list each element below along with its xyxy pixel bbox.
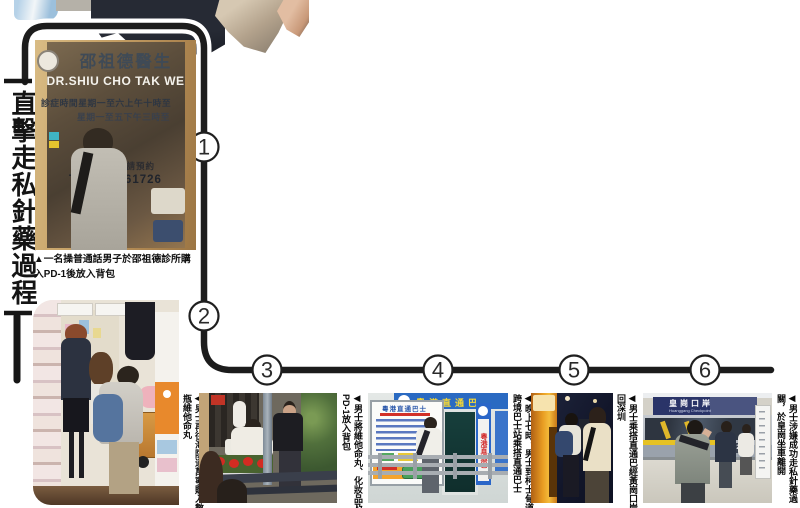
poster-red-band — [380, 413, 430, 416]
blue-backpack — [93, 394, 123, 442]
photo-terminal: 粵港直通巴 粵港直通巴士 粵港直通巴 — [368, 393, 508, 503]
shopper-dark-top — [125, 302, 155, 360]
bus-window-lit — [533, 395, 555, 411]
lamp-glow-1 — [565, 396, 570, 401]
shelf-left — [33, 300, 61, 505]
step-number-6: 6 — [699, 358, 711, 383]
woman-skirt — [63, 398, 89, 432]
traveler-navy-pants — [719, 462, 732, 488]
woman-lower — [585, 471, 609, 503]
woman-torso — [61, 338, 91, 400]
photo-nightbus — [531, 393, 613, 503]
clinic-hours-line2: 星期一至五下午三時至 — [77, 110, 170, 123]
step-circle-3: 3 — [253, 356, 282, 385]
step-circle-2: 2 — [190, 302, 219, 331]
flower-red-2 — [229, 459, 239, 468]
clinic-name-english: DR.SHIU CHO TAK WE — [35, 74, 196, 88]
step-circle-4: 4 — [424, 356, 453, 385]
clinic-hours-line1: 診症時間星期一至六上午十時至 — [41, 96, 171, 109]
railing-post-4 — [488, 453, 492, 479]
clinic-teal-patch — [49, 132, 59, 140]
man-pants-khaki — [109, 442, 139, 494]
step-circle-6: 6 — [691, 356, 720, 385]
photo-clinic: 邵祖德醫生 DR.SHIU CHO TAK WE 診症時間星期一至六上午十時至 … — [35, 40, 196, 250]
step-number-4: 4 — [432, 358, 444, 383]
mannequin — [233, 401, 246, 427]
promo-products-blue — [157, 440, 177, 454]
bushes — [301, 393, 337, 477]
product-patch-yellow — [93, 328, 101, 338]
desk-box — [151, 188, 185, 214]
woman-leg-right — [79, 432, 84, 478]
foreground-man-legs — [681, 483, 705, 503]
railing-post-3 — [453, 453, 457, 479]
flower-red-3 — [243, 457, 253, 466]
step-number-5: 5 — [568, 358, 580, 383]
checkpoint-sign-english: Huanggang Checkpoint — [669, 408, 711, 413]
step-circle-5: 5 — [560, 356, 589, 385]
terminal-door — [442, 409, 478, 495]
photo-store — [33, 300, 179, 505]
lamp-glow-2 — [593, 399, 597, 403]
promo-products-pink — [157, 458, 177, 472]
shelf-sign-1 — [57, 303, 93, 316]
banner-logo-circle — [478, 406, 488, 416]
promo-dot — [163, 390, 171, 398]
standing-man-tee — [273, 413, 303, 451]
info-panel-lines — [759, 411, 765, 469]
floor — [33, 486, 179, 505]
railing-h1 — [368, 455, 508, 459]
clinic-name-chinese: 邵祖德醫生 — [59, 48, 193, 72]
girl-hair — [89, 352, 113, 386]
caption-nightbus: ◀男士乘搭直通巴經黃崗口岸回深圳 — [613, 394, 639, 508]
traveler-white-body — [738, 433, 754, 457]
street-pole — [263, 393, 272, 485]
poster-title: 粵港直通巴士 — [382, 403, 427, 413]
step-number-1: 1 — [198, 135, 210, 160]
railing-h2 — [368, 463, 508, 467]
blue-crate — [153, 220, 183, 242]
step-number-3: 3 — [261, 358, 273, 383]
passerby-head-2 — [217, 479, 247, 503]
boarder-legs — [563, 455, 579, 497]
photo-street — [199, 393, 337, 503]
newspaper-graphic: 1 2 3 4 5 6 直擊走私針藥過程 邵祖德醫生 DR.SHIU CHO T… — [0, 0, 800, 508]
photo-checkpoint: 皇崗口岸 Huanggang Checkpoint 7241 — [643, 393, 772, 503]
caption-street: ◀男士將維他命丸、化妝品及PD-1放入背包 — [338, 394, 364, 508]
traveler-white-lower — [740, 457, 752, 475]
caption-clinic: ▲一名操普通話男子於邵祖德診所購入PD-1後放入背包 — [34, 253, 198, 283]
step-number-2: 2 — [198, 304, 210, 329]
boarder-backpack — [555, 431, 573, 457]
caption-checkpoint: ◀男士涉嫌成功走私針藥過關，於皇崗坐車離開 — [773, 394, 799, 508]
clinic-yellow-patch — [49, 141, 59, 148]
crouching-man-shirt — [231, 427, 267, 455]
standing-man-pants — [279, 451, 301, 487]
railing-post-2 — [413, 453, 417, 479]
railing-post-1 — [378, 453, 382, 479]
railing-h3 — [368, 471, 508, 475]
wall-clock — [37, 50, 59, 72]
red-sign-patch — [211, 395, 225, 405]
woman-leg-left — [69, 432, 74, 478]
traveler-navy-body — [715, 432, 736, 462]
